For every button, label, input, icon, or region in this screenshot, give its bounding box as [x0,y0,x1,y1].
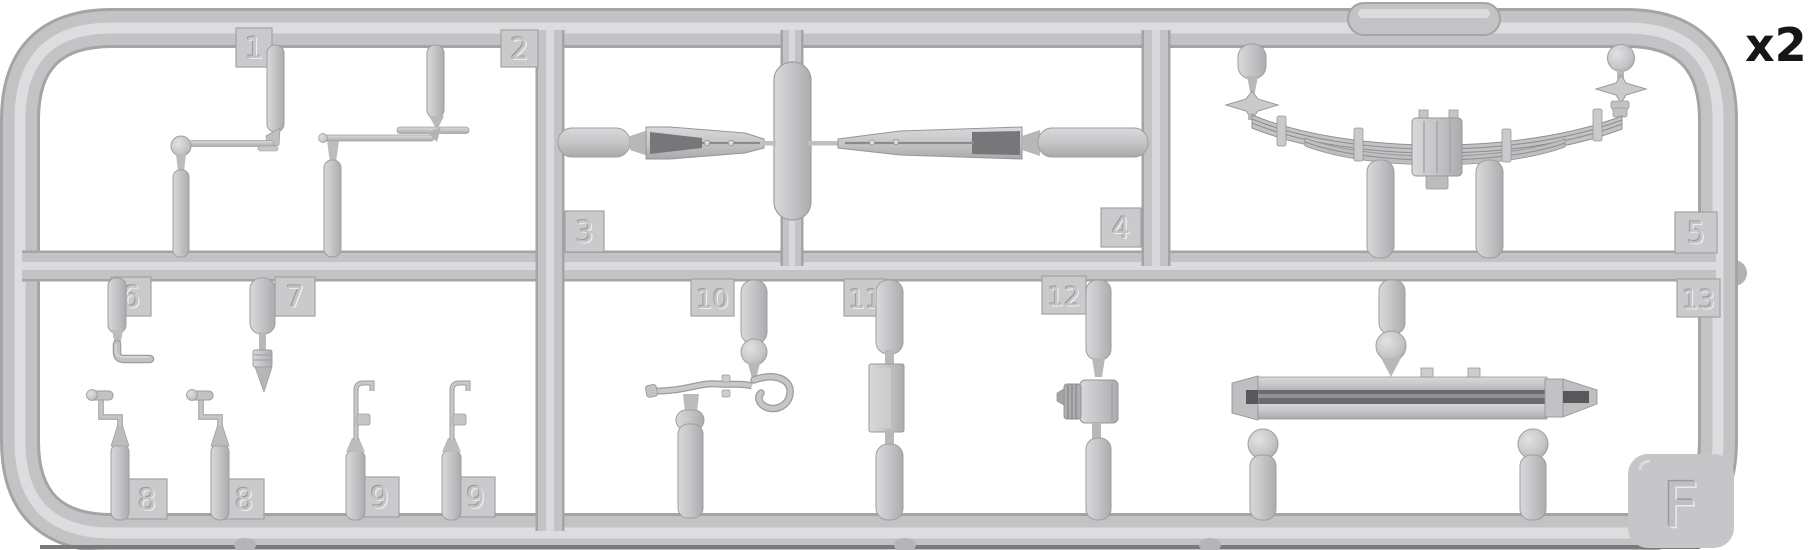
part-5 [1226,44,1646,258]
part-label-3: 333 [565,211,604,252]
quantity-annotation: x2 [1745,18,1807,72]
part-8 [87,390,130,521]
part-label-10: 101010 [691,279,734,316]
part-label-number: 8 [235,483,253,517]
part-13 [1232,280,1597,520]
part-label-number: 9 [370,481,388,515]
sprue-letter: F [1663,469,1699,542]
part-label-number: 7 [286,280,304,314]
part-label-number: 4 [1112,211,1130,245]
part-label-number: 5 [1687,216,1705,250]
part-label-13: 131313 [1677,279,1720,317]
part-label-number: 2 [510,32,528,66]
part-label-number: 12 [1047,283,1080,313]
part-label-number: 1 [245,31,263,65]
part-1 [171,45,284,257]
frame-top-tab [1348,3,1500,35]
sprue-diagram: 1112223334445556667778888889999991010101… [0,0,1814,550]
part-label-9b: 999 [456,477,495,517]
part-label-2: 222 [501,30,538,67]
part-label-7: 777 [275,277,315,316]
part-7 [250,278,275,392]
sprue-photo: 1112223334445556667778888889999991010101… [0,0,1814,550]
part-label-8b: 888 [224,479,264,519]
part-label-4: 444 [1101,208,1141,247]
part-3 [558,127,776,159]
frame-divider-2 [774,30,811,266]
part-label-number: 8 [138,483,156,517]
part-label-5: 555 [1675,212,1717,253]
part-8-copy [187,390,230,521]
part-label-number: 10 [696,285,729,315]
part-label-number: 3 [575,215,593,249]
part-label-number: 9 [466,481,484,515]
part-4 [808,127,1148,159]
part-12 [1057,280,1118,520]
part-label-12: 121212 [1042,276,1086,314]
part-label-9a: 999 [360,477,399,517]
part-label-8a: 888 [127,479,167,519]
part-label-number: 13 [1682,286,1715,316]
part-2 [319,45,470,257]
sprue-letter-tab: F F F [1628,454,1734,548]
